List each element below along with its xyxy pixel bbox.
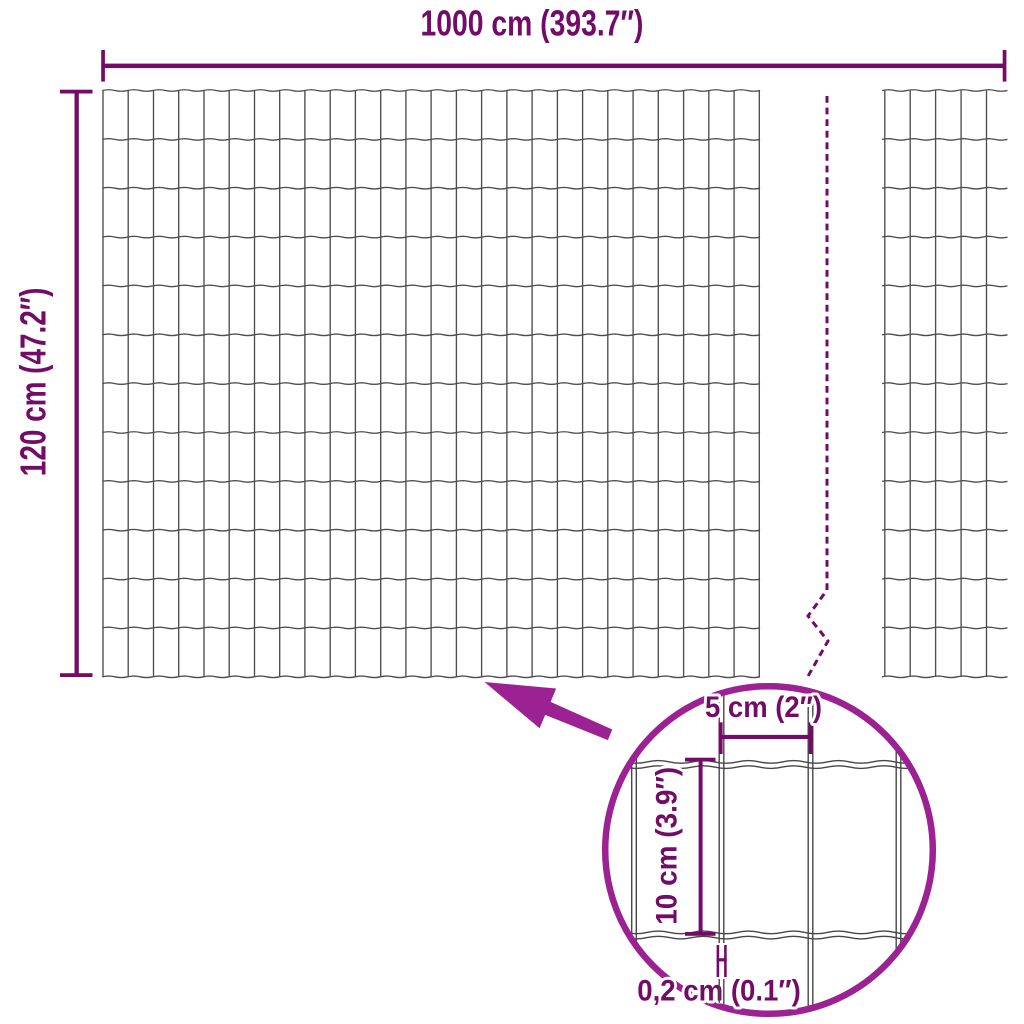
svg-text:10 cm (3.9″): 10 cm (3.9″)	[651, 767, 684, 925]
svg-text:5 cm (2″): 5 cm (2″)	[705, 691, 822, 724]
svg-text:1000 cm (393.7″): 1000 cm (393.7″)	[421, 3, 644, 44]
svg-text:120 cm (47.2″): 120 cm (47.2″)	[13, 288, 54, 477]
